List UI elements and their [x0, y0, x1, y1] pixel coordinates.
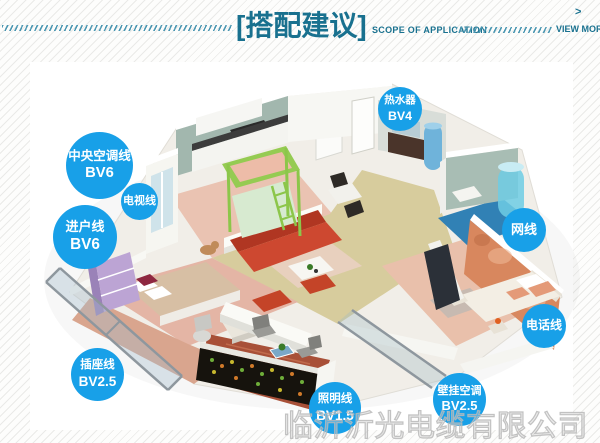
- callout-network-cable: 网线: [502, 208, 546, 252]
- callout-label: 电话线: [526, 318, 562, 334]
- callout-entry-line: 进户线 BV6: [53, 205, 117, 269]
- callout-spec: BV6: [85, 164, 114, 183]
- page: [搭配建议] SCOPE OF APPLICATION > VIEW MOR: [0, 0, 600, 443]
- callout-label: 网线: [511, 222, 537, 239]
- callout-spec: BV6: [70, 235, 100, 255]
- company-watermark: 临沂沂光电缆有限公司: [283, 401, 588, 443]
- callout-phone-line: 电话线: [522, 304, 566, 348]
- callout-spec: BV2.5: [79, 373, 117, 391]
- callout-label: 热水器: [384, 94, 416, 108]
- callout-label: 进户线: [65, 219, 104, 236]
- callout-label: 壁挂空调: [438, 384, 482, 398]
- callout-label: 插座线: [80, 358, 115, 373]
- callout-spec: BV4: [388, 108, 412, 124]
- callout-central-ac-line: 中央空调线 BV6: [66, 132, 133, 199]
- callout-label: 电视线: [123, 194, 156, 208]
- callout-socket-line: 插座线 BV2.5: [71, 348, 124, 401]
- callout-tv-line: 电视线: [121, 183, 158, 220]
- callout-water-heater: 热水器 BV4: [378, 87, 422, 131]
- callout-label: 中央空调线: [68, 148, 131, 164]
